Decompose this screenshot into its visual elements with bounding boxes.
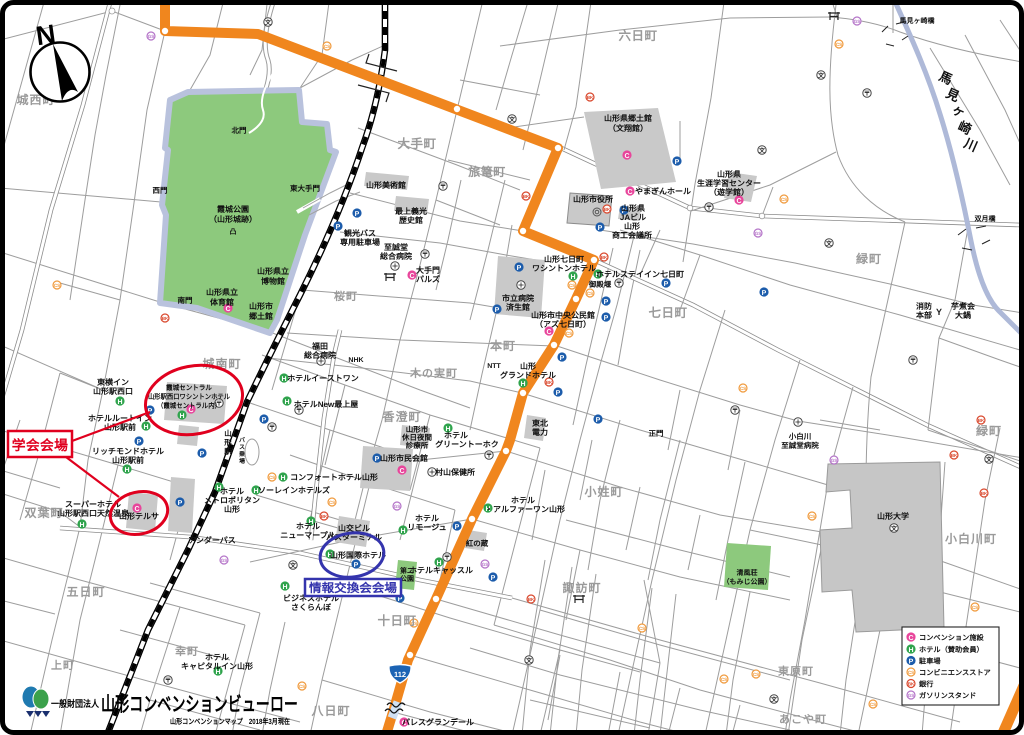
- svg-text:リモージュ: リモージュ: [407, 523, 446, 532]
- svg-text:清風荘: 清風荘: [737, 568, 758, 577]
- svg-text:山形市中央公民館: 山形市中央公民館: [531, 311, 595, 320]
- svg-text:上町: 上町: [51, 659, 75, 672]
- svg-text:山形国際ホテル: 山形国際ホテル: [330, 551, 386, 560]
- svg-text:山形市民会館: 山形市民会館: [380, 454, 428, 463]
- svg-text:博物館: 博物館: [261, 277, 285, 286]
- svg-text:情報交換会会場: 情報交換会会場: [309, 581, 397, 595]
- svg-text:最上義光: 最上義光: [395, 207, 427, 216]
- svg-text:山形県立: 山形県立: [206, 288, 238, 297]
- svg-text:御殿堰: 御殿堰: [588, 280, 612, 289]
- svg-text:駐車場: 駐車場: [919, 657, 941, 666]
- svg-text:山形駅前: 山形駅前: [112, 456, 144, 465]
- svg-text:生涯学習センター: 生涯学習センター: [697, 179, 761, 188]
- svg-text:ホテル: ホテル: [415, 514, 439, 523]
- svg-text:一般財団法人: 一般財団法人: [51, 698, 99, 710]
- svg-text:南門: 南門: [178, 296, 193, 305]
- svg-text:場: 場: [239, 457, 245, 465]
- svg-text:ワシントンホテル: ワシントンホテル: [532, 264, 596, 273]
- svg-text:山形: 山形: [520, 362, 536, 371]
- svg-text:ホテル: ホテル: [220, 487, 244, 496]
- svg-text:山形県郷土館: 山形県郷土館: [604, 114, 652, 123]
- svg-text:ホテル: ホテル: [205, 653, 229, 662]
- svg-text:山形テルサ: 山形テルサ: [119, 512, 159, 521]
- svg-text:ホテル: ホテル: [444, 431, 468, 440]
- svg-text:メトロポリタン: メトロポリタン: [204, 496, 260, 505]
- svg-text:山形市: 山形市: [249, 302, 273, 311]
- svg-text:村山保健所: 村山保健所: [434, 468, 475, 477]
- svg-text:小白川町: 小白川町: [944, 532, 997, 546]
- svg-text:十日町: 十日町: [377, 614, 416, 628]
- svg-text:リッチモンドホテル: リッチモンドホテル: [92, 447, 164, 456]
- svg-text:（遊学館）: （遊学館）: [709, 187, 749, 197]
- svg-text:桜町: 桜町: [334, 290, 358, 303]
- svg-text:山形コンベンションビューロー: 山形コンベンションビューロー: [101, 694, 298, 716]
- svg-text:至誠堂病院: 至誠堂病院: [781, 441, 819, 450]
- svg-text:郷土館: 郷土館: [249, 312, 273, 321]
- svg-text:（アズ七日町）: （アズ七日町）: [535, 319, 591, 329]
- svg-text:学会会場: 学会会場: [12, 437, 68, 453]
- svg-text:山: 山: [224, 429, 232, 438]
- svg-text:ホテル（賛助会員）: ホテル（賛助会員）: [919, 645, 984, 654]
- svg-text:済生館: 済生館: [506, 303, 530, 312]
- svg-text:（もみじ公園）: （もみじ公園）: [723, 577, 772, 586]
- svg-text:駅: 駅: [223, 447, 232, 456]
- svg-text:（山形城跡）: （山形城跡）: [209, 214, 257, 224]
- svg-text:山形駅西口: 山形駅西口: [93, 387, 133, 396]
- svg-text:霞城セントラル: 霞城セントラル: [166, 383, 212, 392]
- svg-text:N: N: [34, 19, 57, 51]
- svg-text:双葉町: 双葉町: [24, 506, 63, 520]
- svg-text:八日町: 八日町: [311, 704, 350, 718]
- svg-text:体育館: 体育館: [210, 298, 234, 307]
- svg-text:北門: 北門: [232, 126, 247, 135]
- svg-text:市立病院: 市立病院: [502, 294, 534, 303]
- svg-text:福田: 福田: [311, 342, 328, 351]
- svg-text:商工会議所: 商工会議所: [612, 231, 652, 240]
- svg-text:ホテル: ホテル: [296, 522, 320, 531]
- svg-text:コンフォートホテル山形: コンフォートホテル山形: [290, 473, 378, 482]
- svg-text:山形: 山形: [224, 505, 240, 514]
- svg-text:木の実町: 木の実町: [409, 367, 458, 380]
- svg-text:112: 112: [394, 670, 406, 679]
- svg-text:NHK: NHK: [348, 357, 363, 364]
- svg-text:コンベンション施設: コンベンション施設: [919, 633, 985, 642]
- svg-text:五日町: 五日町: [66, 585, 105, 599]
- svg-text:小白川: 小白川: [788, 432, 812, 441]
- svg-text:芋煮会: 芋煮会: [951, 302, 976, 311]
- svg-text:双月橋: 双月橋: [975, 214, 997, 223]
- svg-text:ホテルNew最上屋: ホテルNew最上屋: [294, 400, 358, 409]
- svg-text:やまぎんホール: やまぎんホール: [635, 187, 691, 196]
- svg-text:凸: 凸: [230, 228, 237, 236]
- svg-text:七日町: 七日町: [648, 306, 687, 320]
- svg-text:緑町: 緑町: [976, 424, 1002, 438]
- svg-text:電力: 電力: [532, 428, 548, 437]
- svg-text:霞城公園: 霞城公園: [217, 205, 249, 214]
- svg-text:総合病院: 総合病院: [304, 351, 336, 360]
- svg-text:至誠堂: 至誠堂: [384, 243, 408, 252]
- svg-text:（霞城セントラル内）: （霞城セントラル内）: [157, 401, 221, 410]
- svg-text:Y: Y: [936, 307, 942, 317]
- svg-text:緑町: 緑町: [856, 252, 882, 266]
- svg-text:専用駐車場: 専用駐車場: [340, 238, 380, 247]
- svg-text:ホテルキャッスル: ホテルキャッスル: [409, 566, 473, 575]
- svg-text:銀行: 銀行: [919, 680, 934, 689]
- svg-text:山形コンベンションマップ 2018年3月現在: 山形コンベンションマップ 2018年3月現在: [170, 717, 290, 726]
- svg-text:本町: 本町: [490, 339, 516, 353]
- svg-text:正門: 正門: [649, 429, 664, 438]
- svg-text:東大手門: 東大手門: [290, 184, 320, 193]
- svg-text:観光バス: 観光バス: [343, 229, 376, 238]
- svg-text:東北: 東北: [531, 419, 548, 428]
- svg-text:アンダーパス: アンダーパス: [188, 536, 236, 545]
- svg-text:（文翔館）: （文翔館）: [608, 123, 648, 133]
- svg-text:ソーレインホテルズ: ソーレインホテルズ: [258, 485, 330, 495]
- svg-text:本部: 本部: [916, 311, 932, 320]
- svg-text:諏訪町: 諏訪町: [562, 581, 601, 595]
- svg-text:小姓町: 小姓町: [583, 485, 623, 499]
- svg-text:消防: 消防: [916, 302, 932, 311]
- svg-text:総合病院: 総合病院: [380, 252, 412, 261]
- svg-text:ス: ス: [239, 444, 245, 451]
- svg-text:山形大学: 山形大学: [877, 512, 909, 521]
- svg-text:馬見ヶ崎橋: 馬見ヶ崎橋: [900, 16, 936, 25]
- svg-text:さくらんぼ: さくらんぼ: [291, 603, 332, 612]
- svg-text:山形七日町: 山形七日町: [544, 255, 584, 264]
- svg-text:乗: 乗: [238, 450, 246, 458]
- svg-text:形: 形: [224, 438, 232, 447]
- svg-text:パレスグランデール: パレスグランデール: [402, 717, 474, 727]
- svg-text:旅篭町: 旅篭町: [468, 165, 506, 179]
- svg-text:山形市役所: 山形市役所: [573, 195, 613, 204]
- svg-text:香澄町: 香澄町: [381, 410, 421, 424]
- svg-text:大手町: 大手町: [397, 137, 436, 151]
- svg-text:グリーントーホク: グリーントーホク: [435, 440, 499, 449]
- svg-text:診療所: 診療所: [406, 441, 429, 450]
- svg-text:大鍋: 大鍋: [955, 311, 971, 320]
- svg-text:歴史館: 歴史館: [399, 216, 423, 225]
- svg-text:コンビニエンスストア: コンビニエンスストア: [919, 668, 991, 677]
- svg-text:バ: バ: [239, 436, 245, 444]
- svg-text:ホテルステイイン七日町: ホテルステイイン七日町: [596, 270, 684, 279]
- svg-text:山形美術館: 山形美術館: [366, 181, 406, 190]
- svg-text:山形県: 山形県: [621, 204, 645, 213]
- svg-text:山形: 山形: [624, 222, 640, 231]
- svg-text:ガソリンスタンド: ガソリンスタンド: [919, 691, 976, 700]
- svg-text:グランドホテル: グランドホテル: [500, 371, 556, 380]
- svg-text:パルズ: パルズ: [416, 274, 440, 284]
- svg-text:山形駅西口ワシントンホテル: 山形駅西口ワシントンホテル: [148, 393, 230, 401]
- svg-text:幸町: 幸町: [175, 645, 199, 658]
- svg-text:JAビル: JAビル: [620, 213, 646, 222]
- svg-text:第二: 第二: [400, 566, 414, 575]
- svg-text:ニューマープル: ニューマープル: [280, 531, 336, 540]
- svg-text:西門: 西門: [153, 186, 168, 195]
- svg-text:NTT: NTT: [487, 363, 501, 370]
- svg-text:紅の蔵: 紅の蔵: [466, 539, 489, 548]
- svg-text:東横イン: 東横イン: [96, 378, 129, 387]
- svg-text:あこや町: あこや町: [779, 713, 827, 726]
- svg-text:・アルファーワン山形: ・アルファーワン山形: [485, 505, 565, 514]
- svg-text:山形県: 山形県: [717, 170, 741, 179]
- svg-text:ホテル: ホテル: [511, 496, 535, 505]
- svg-text:山形県立: 山形県立: [257, 267, 289, 276]
- svg-text:大手門: 大手門: [416, 266, 440, 275]
- svg-text:六日町: 六日町: [618, 29, 657, 43]
- svg-text:東原町: 東原町: [778, 665, 814, 678]
- svg-text:キャピタルイン山形: キャピタルイン山形: [181, 662, 253, 671]
- svg-text:ホテルイーストワン: ホテルイーストワン: [287, 374, 359, 383]
